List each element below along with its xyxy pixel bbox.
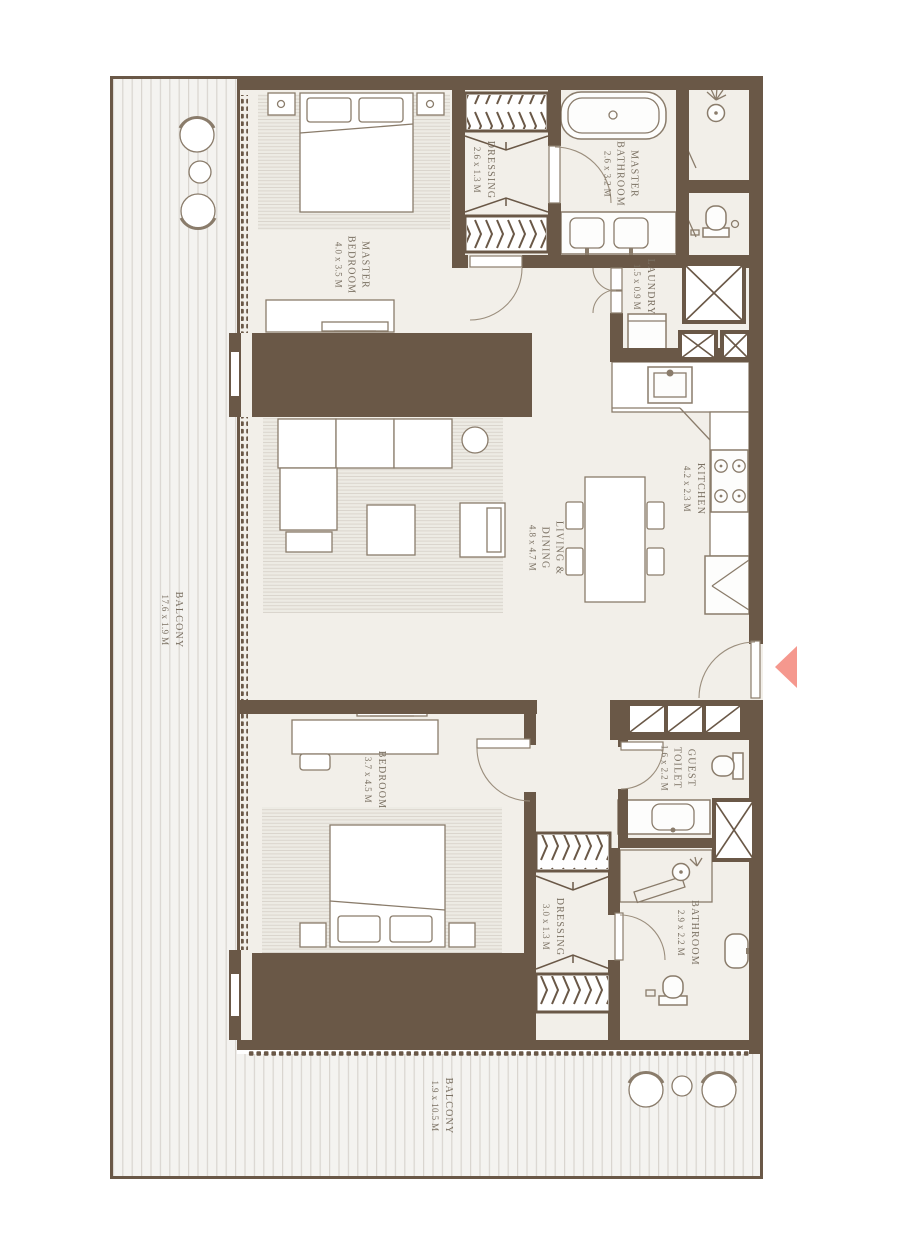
window <box>231 352 239 396</box>
bed-icon <box>300 93 413 212</box>
nightstand <box>268 93 295 115</box>
room-label-guest-toilet: GUEST TOILET 1.6 x 2.2 M <box>658 745 697 791</box>
room-label-master-bathroom: MASTER BATHROOM 2.6 x 3.2 M <box>601 141 640 207</box>
room-name: DRESSING <box>483 141 497 200</box>
nightstand <box>449 923 475 947</box>
room-name: MASTER BATHROOM <box>614 141 641 207</box>
pillow <box>338 916 380 942</box>
sink-icon <box>648 367 692 403</box>
nightstand <box>300 923 326 947</box>
guest-closets <box>630 706 740 732</box>
wardrobe-block <box>252 333 532 417</box>
room-size: 4.0 x 3.5 M <box>332 236 344 294</box>
desk-chair <box>300 754 330 770</box>
bathtub-icon <box>561 92 666 139</box>
room-label-master-bedroom: MASTER BEDROOM 4.0 x 3.5 M <box>332 236 371 294</box>
desk <box>292 720 438 754</box>
room-name: KITCHEN <box>693 463 707 515</box>
room-size: 3.7 x 4.5 M <box>362 751 374 809</box>
balcony-armchair <box>629 1072 663 1107</box>
balcony-armchair <box>702 1072 736 1107</box>
room-size: 1.6 x 2.2 M <box>658 745 670 791</box>
nightstand <box>417 93 444 115</box>
room-size: 4.2 x 2.3 M <box>681 463 693 515</box>
dining-chair <box>647 548 664 575</box>
toilet-icon <box>712 753 743 779</box>
bed-icon <box>330 825 445 947</box>
room-size: 1.5 x 0.9 M <box>631 259 643 316</box>
room-name: LAUNDRY <box>643 259 657 316</box>
vanity-icon <box>618 800 710 834</box>
room-label-dressing-master: DRESSING 2.6 x 1.3 M <box>471 141 497 200</box>
balcony-armchair <box>181 194 215 229</box>
floor-plan-svg <box>0 0 900 1242</box>
pillow <box>307 98 351 122</box>
room-name: BALCONY <box>441 1078 455 1135</box>
wardrobe-block <box>252 953 530 1040</box>
shaft-x-icon <box>680 332 716 359</box>
shaft-x-icon <box>714 800 754 860</box>
room-size: 2.6 x 3.2 M <box>601 141 613 207</box>
room-size: 4.8 x 4.7 M <box>526 521 538 575</box>
balcony-armchair <box>180 117 214 152</box>
room-label-balcony-left: BALCONY 17.6 x 1.9 M <box>159 592 185 649</box>
room-name: LIVING & DINING <box>539 521 566 575</box>
entry-arrow-icon <box>775 646 797 688</box>
room-name: BALCONY <box>171 592 185 649</box>
dining-chair <box>566 548 583 575</box>
balcony-side-table <box>189 161 211 183</box>
room-size: 2.9 x 2.2 M <box>675 900 687 966</box>
room-name: GUEST TOILET <box>671 745 698 791</box>
room-name: BATHROOM <box>687 900 701 966</box>
armchair-icon <box>460 503 505 557</box>
stove-icon <box>711 450 748 512</box>
dining-chair <box>647 502 664 529</box>
room-label-balcony-bottom: BALCONY 1.9 x 10.5 M <box>429 1078 455 1135</box>
side-table <box>462 427 488 453</box>
room-label-kitchen: KITCHEN 4.2 x 2.3 M <box>681 463 707 515</box>
room-name: DRESSING <box>552 898 566 957</box>
laundry <box>628 314 666 351</box>
coffee-table <box>367 505 415 555</box>
room-label-laundry: LAUNDRY 1.5 x 0.9 M <box>631 259 657 316</box>
room-label-bedroom: BEDROOM 3.7 x 4.5 M <box>362 751 388 809</box>
dining-chair <box>566 502 583 529</box>
pillow <box>390 916 432 942</box>
fridge-icon <box>705 556 749 614</box>
room-name: BEDROOM <box>374 751 388 809</box>
pillow <box>359 98 403 122</box>
basin-icon <box>725 934 752 968</box>
washer-icon <box>628 314 666 351</box>
room-label-bathroom: BATHROOM 2.9 x 2.2 M <box>675 900 701 966</box>
double-vanity-icon <box>561 212 676 255</box>
floor-plan: BALCONY 17.6 x 1.9 M MASTER BEDROOM 4.0 … <box>0 0 900 1242</box>
room-name: MASTER BEDROOM <box>345 236 372 294</box>
balcony-side-table <box>672 1076 692 1096</box>
shaft-x-icon <box>722 332 749 359</box>
room-size: 17.6 x 1.9 M <box>159 592 171 649</box>
room-label-living-dining: LIVING & DINING 4.8 x 4.7 M <box>526 521 565 575</box>
room-label-dressing-bedroom: DRESSING 3.0 x 1.3 M <box>540 898 566 957</box>
ottoman <box>286 532 332 552</box>
room-size: 2.6 x 1.3 M <box>471 141 483 200</box>
room-size: 3.0 x 1.3 M <box>540 898 552 957</box>
shaft-x-icon <box>684 264 744 322</box>
tv-icon <box>322 322 388 331</box>
room-size: 1.9 x 10.5 M <box>429 1078 441 1135</box>
window <box>231 974 239 1016</box>
balcony-bottom <box>237 1054 763 1179</box>
